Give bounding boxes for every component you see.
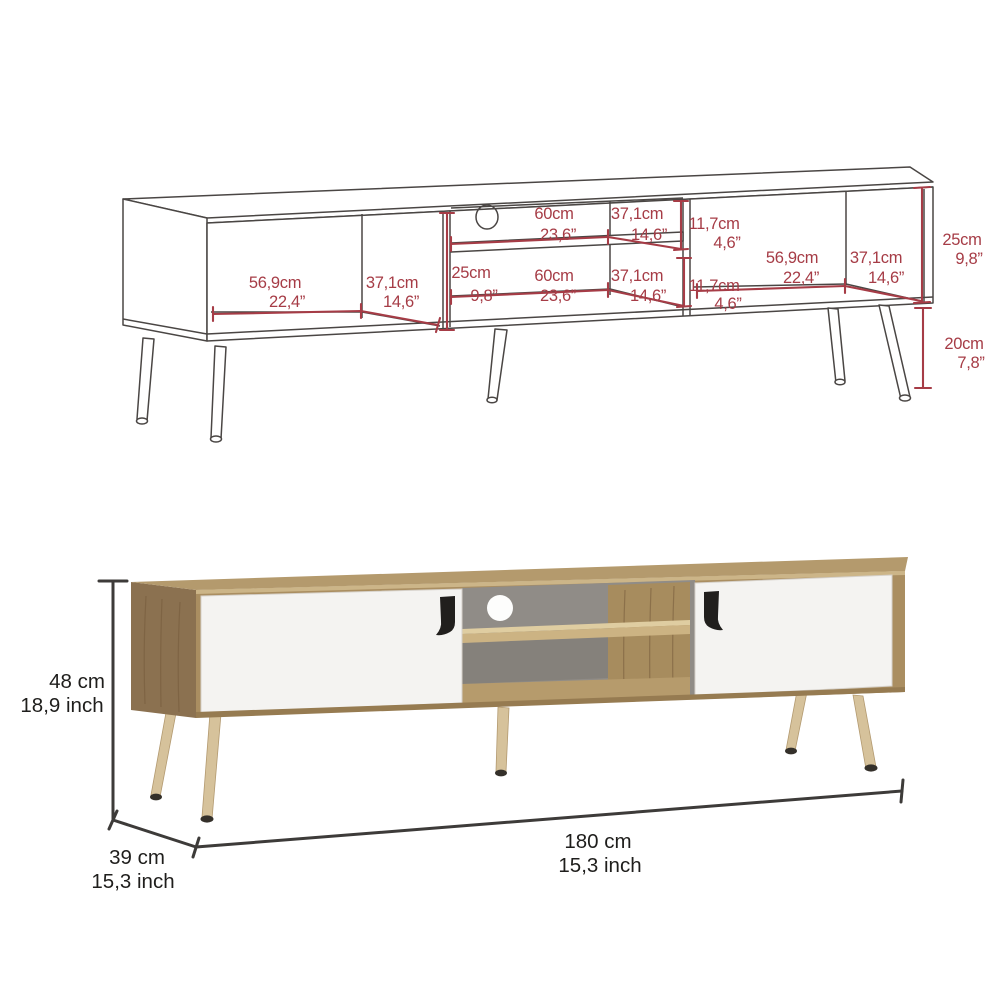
dimension-diagram-canvas: 56,9cm 22,4” 37,1cm 14,6” 25cm 9,8” 60cm… — [0, 0, 1000, 1000]
left-door[interactable] — [201, 589, 462, 714]
dim-right-width-cm: 56,9cm — [766, 249, 818, 267]
dim-right-depth-cm: 37,1cm — [850, 249, 902, 267]
dim-product-width-cm: 180 cm — [564, 830, 631, 853]
product-render: 48 cm 18,9 inch 39 cm 15,3 inch 180 cm 1… — [20, 557, 908, 893]
right-door[interactable] — [695, 575, 892, 696]
dim-lower-height-cm: 11,7cm — [688, 277, 739, 295]
technical-drawing: 56,9cm 22,4” 37,1cm 14,6” 25cm 9,8” 60cm… — [123, 167, 985, 442]
dim-leg-height-in: 7,8” — [957, 354, 984, 372]
dim-lower-width-in: 23,6” — [540, 287, 576, 305]
dim-lower-depth-in: 14,6” — [630, 287, 666, 305]
dim-left-width-in: 22,4” — [269, 293, 305, 311]
dim-upper-depth-cm: 37,1cm — [611, 205, 663, 223]
dim-upper-width-in: 23,6” — [540, 226, 576, 244]
render-cabinet — [131, 557, 908, 718]
dim-middle-height-in: 9,8” — [470, 287, 497, 305]
open-section-lower-back — [462, 637, 608, 684]
dim-left-depth-in: 14,6” — [383, 293, 419, 311]
dim-lower-depth-cm: 37,1cm — [611, 267, 663, 285]
dim-upper-height-in: 4,6” — [713, 234, 740, 252]
cable-hole — [487, 595, 513, 621]
dim-product-width-inch: 15,3 inch — [558, 854, 641, 877]
dim-middle-height-cm: 25cm — [451, 264, 490, 282]
dim-right-depth-in: 14,6” — [868, 269, 904, 287]
dim-left-width-cm: 56,9cm — [249, 274, 301, 292]
dim-upper-depth-in: 14,6” — [631, 226, 667, 244]
dim-left-depth-cm: 37,1cm — [366, 274, 418, 292]
dim-upper-height-cm: 11,7cm — [688, 215, 739, 233]
dim-lower-height-in: 4,6” — [714, 295, 741, 313]
left-side-panel — [131, 582, 196, 718]
dim-body-height-cm: 25cm — [942, 231, 981, 249]
dim-product-depth-inch: 15,3 inch — [91, 870, 174, 893]
dim-right-width-in: 22,4” — [783, 269, 819, 287]
product-dimension-sheet: 56,9cm 22,4” 37,1cm 14,6” 25cm 9,8” 60cm… — [0, 0, 1000, 1000]
dim-leg-height-cm: 20cm — [944, 335, 983, 353]
dim-product-height-inch: 18,9 inch — [20, 694, 103, 717]
dim-upper-width-cm: 60cm — [534, 205, 573, 223]
dim-lower-width-cm: 60cm — [534, 267, 573, 285]
dim-body-height-in: 9,8” — [955, 250, 982, 268]
dim-product-height-cm: 48 cm — [49, 670, 105, 693]
dim-product-depth-cm: 39 cm — [109, 846, 165, 869]
